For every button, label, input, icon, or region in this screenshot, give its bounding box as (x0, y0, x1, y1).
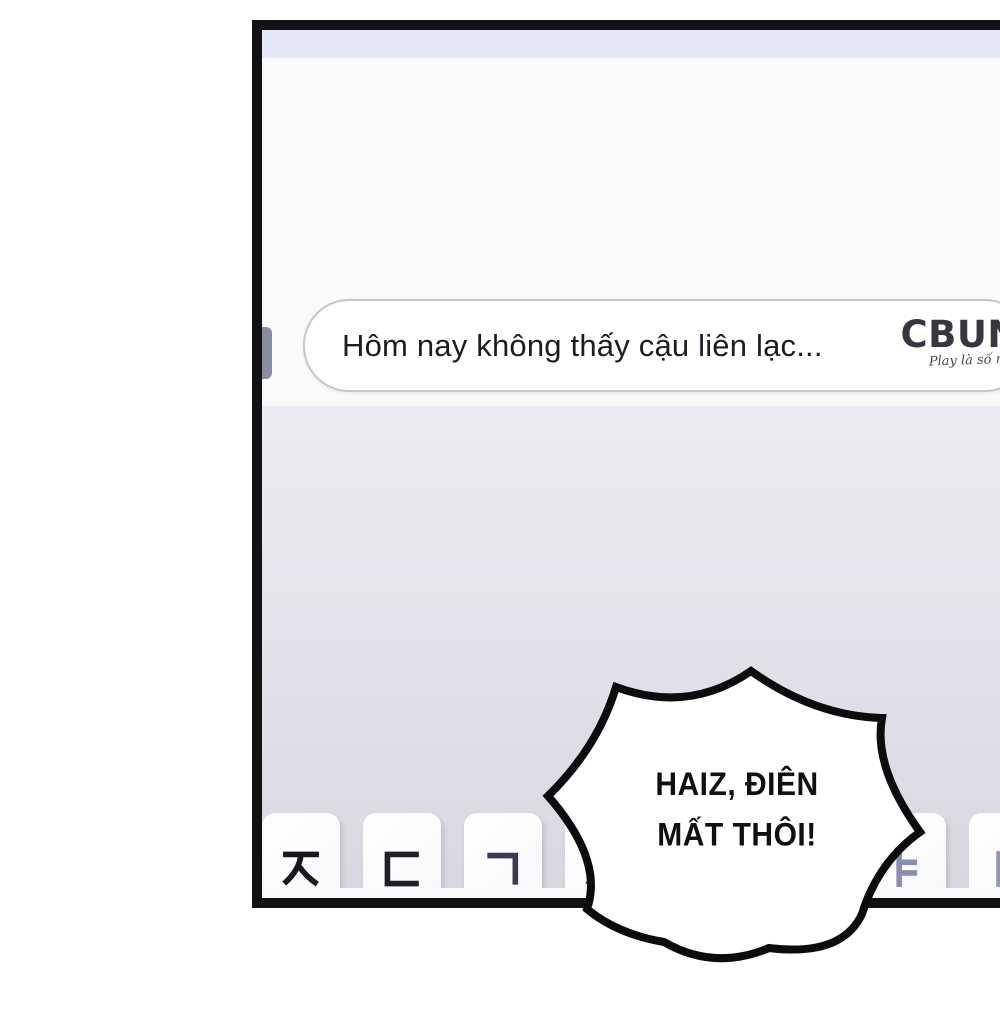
key-glyph-ㄱ (475, 841, 531, 889)
key-ㅈ[interactable] (262, 813, 340, 888)
speech-line-2: MẤT THÔI! (607, 810, 867, 861)
watermark: CBUNU Play là số một (890, 313, 1000, 368)
screen-edge-tab[interactable] (262, 327, 272, 379)
key-glyph-ㄷ (374, 841, 430, 889)
key-glyph-ㅈ (273, 841, 329, 889)
speech-bubble-text: HAIZ, ĐIÊN MẤT THÔI! (607, 759, 867, 861)
message-input[interactable]: Hôm nay không thấy cậu liên lạc... CBUNU… (303, 299, 1000, 392)
key-ㄱ[interactable] (464, 813, 542, 888)
key-glyph-ㅐ (980, 841, 1000, 889)
watermark-brand-logo: CBUNU (890, 313, 1000, 356)
message-input-text: Hôm nay không thấy cậu liên lạc... (342, 301, 823, 390)
speech-line-1: HAIZ, ĐIÊN (607, 759, 867, 810)
status-bar (262, 30, 1000, 58)
key-ㄷ[interactable] (363, 813, 441, 888)
key-ㅐ[interactable] (969, 813, 1000, 888)
